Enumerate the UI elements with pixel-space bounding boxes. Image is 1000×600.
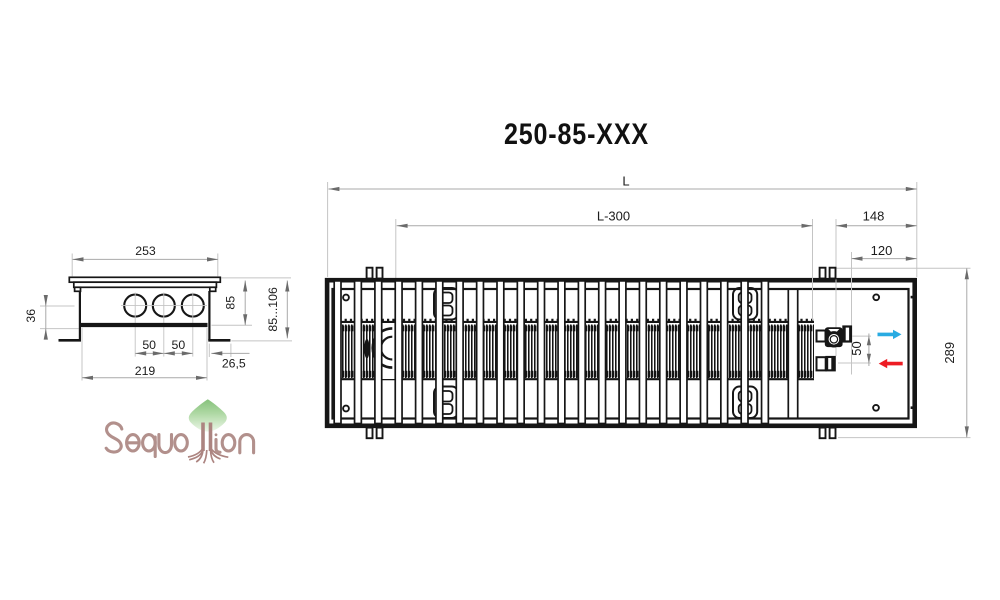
svg-text:L: L <box>622 173 629 188</box>
svg-text:36: 36 <box>24 309 38 323</box>
svg-text:50: 50 <box>849 341 864 355</box>
svg-text:85...106: 85...106 <box>266 287 280 332</box>
svg-text:148: 148 <box>863 209 885 224</box>
svg-text:120: 120 <box>871 243 893 258</box>
svg-text:50: 50 <box>172 338 186 352</box>
svg-text:50: 50 <box>142 338 156 352</box>
svg-text:253: 253 <box>135 244 156 258</box>
svg-text:26,5: 26,5 <box>222 356 246 370</box>
svg-text:85: 85 <box>224 296 238 310</box>
svg-text:289: 289 <box>942 342 957 364</box>
svg-text:250-85-XXX: 250-85-XXX <box>504 117 649 150</box>
svg-text:L-300: L-300 <box>597 209 630 224</box>
svg-text:219: 219 <box>135 364 156 378</box>
